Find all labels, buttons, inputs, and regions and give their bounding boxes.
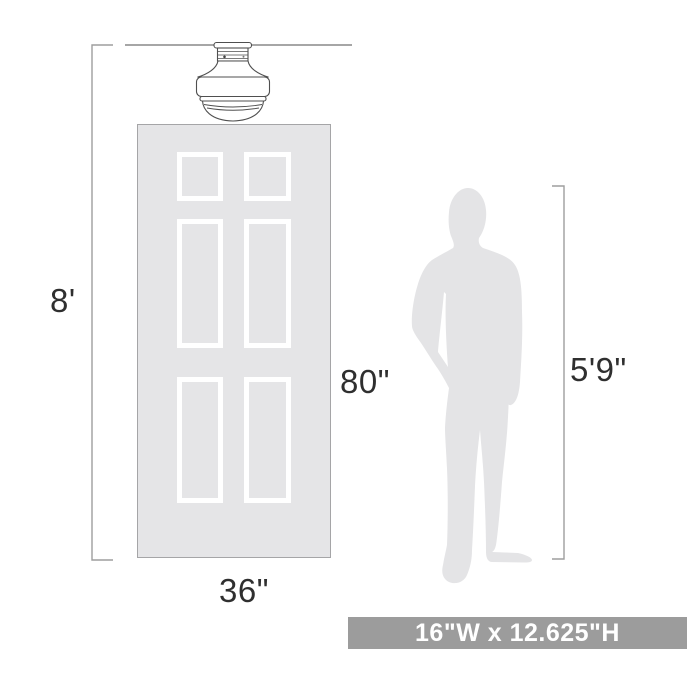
door-panel [244,152,291,201]
fixture-dome [203,101,264,121]
fixture-screw [243,56,245,58]
fixture-neck [198,61,269,77]
dimension-diagram: 8' 80" 36" 5'9" 16"W x 12.625"H [0,0,700,700]
fixture-collar [218,48,249,61]
door-panel [244,219,291,348]
fixture-canopy-plate [214,43,252,49]
door-panel [177,377,223,503]
diagram-graphics [0,0,700,700]
person-height-dimension-line [552,186,564,559]
door-width-label: 36" [219,574,269,607]
door-height-label: 80" [340,365,390,398]
ceiling-height-label: 8' [50,284,76,317]
ceiling-height-dimension-line [92,45,113,560]
door-panel [177,152,223,201]
fixture-rim [200,97,266,102]
person-height-label: 5'9" [570,353,627,386]
six-panel-door-icon [137,124,331,558]
dimensions-banner-label: 16"W x 12.625"H [415,619,620,648]
person-silhouette-body [412,188,532,583]
door-panel [177,219,223,348]
person-silhouette-icon [412,188,532,583]
fixture-drum [197,77,270,97]
fixture-screw [223,56,226,59]
dimensions-banner: 16"W x 12.625"H [348,617,687,649]
flush-mount-light-icon [197,43,270,122]
door-panel [244,377,291,503]
